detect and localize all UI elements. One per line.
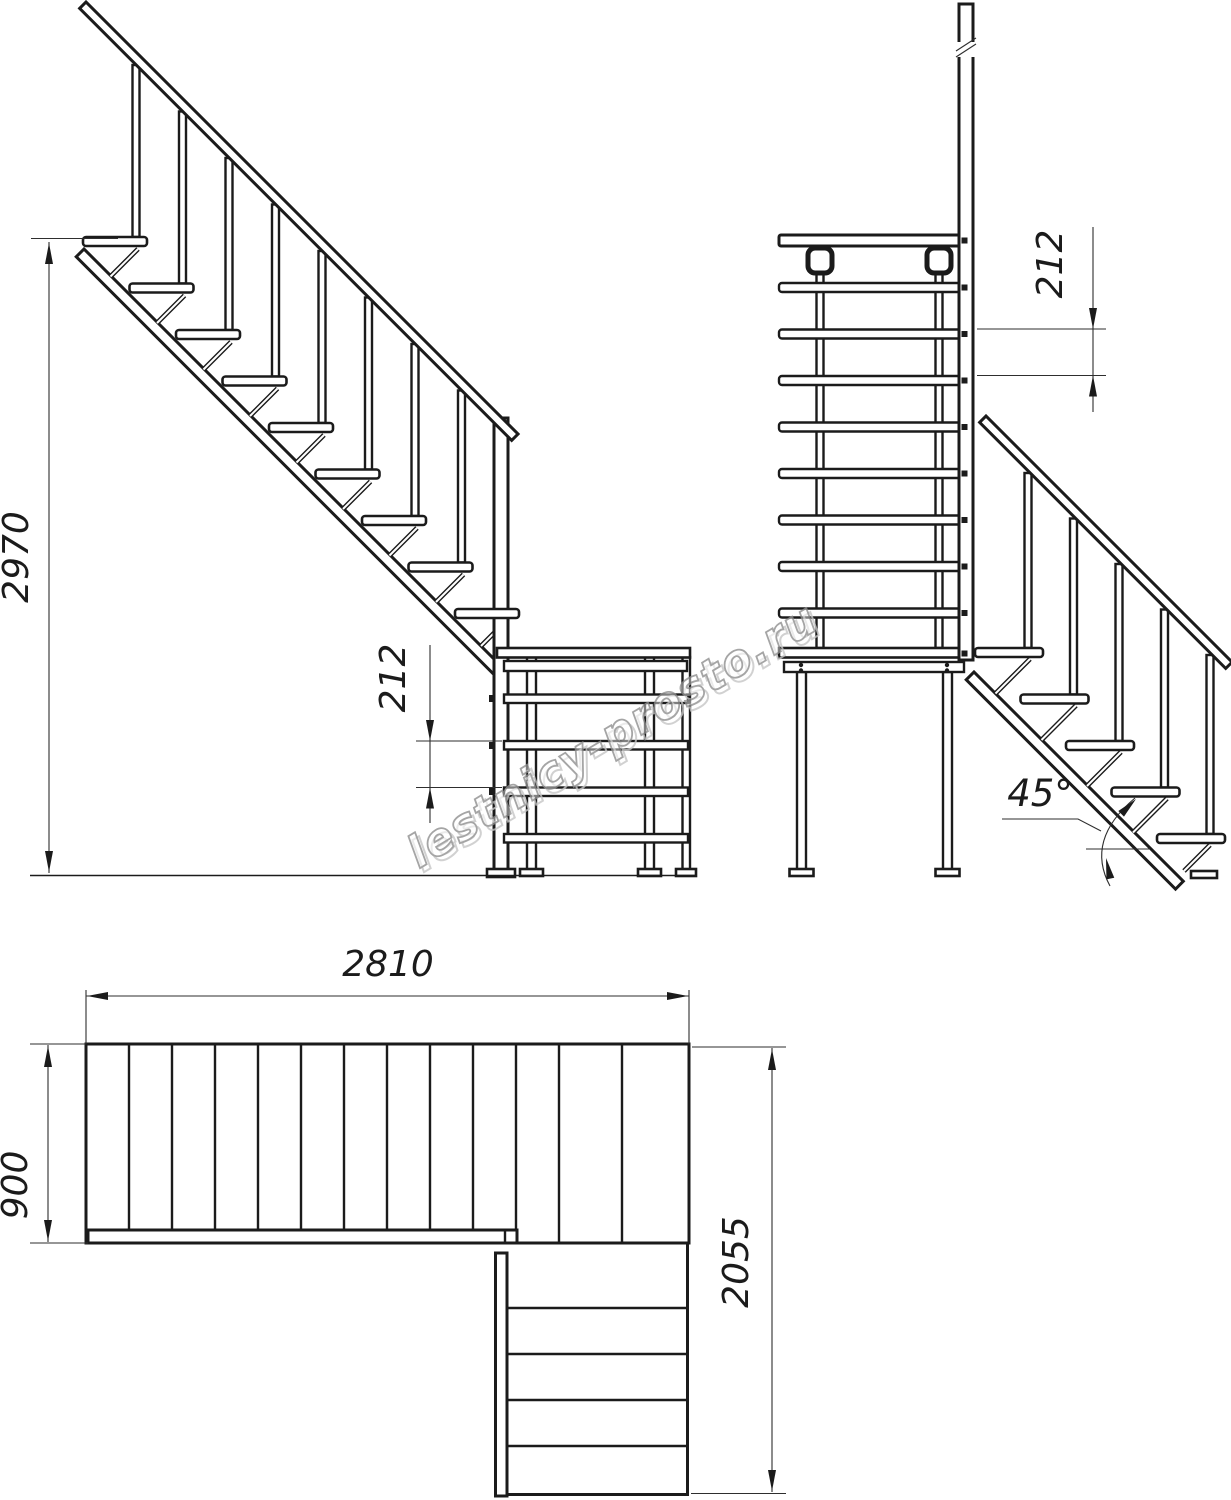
lower-handrail (980, 416, 1231, 668)
joint-mark (962, 610, 968, 616)
plan-view (86, 1044, 689, 1496)
tread (176, 330, 240, 339)
tread (316, 470, 380, 479)
arrowhead (1102, 857, 1114, 879)
brace (204, 342, 232, 370)
joint-mark (962, 424, 968, 430)
joint-mark (799, 663, 803, 667)
handrail-bracket (927, 248, 951, 273)
platform-apron (784, 662, 964, 672)
baluster (412, 344, 419, 516)
brace (111, 249, 139, 277)
brace (1087, 752, 1121, 786)
upper-flight-treads (83, 237, 519, 618)
tread (975, 648, 1043, 657)
arrowhead (45, 851, 53, 872)
tread (779, 423, 971, 432)
arrowhead (87, 992, 108, 1000)
platform-handrail (779, 235, 972, 246)
joint-mark (962, 285, 968, 291)
foot-plate (936, 869, 960, 876)
staircase-drawing: 2970 212 (0, 0, 1231, 1500)
baluster (1116, 564, 1123, 741)
joint-mark (962, 331, 968, 337)
baluster (272, 205, 279, 377)
dimension-lower-run-length-label: 2055 (716, 1216, 757, 1308)
upper-flight-braces (111, 249, 509, 646)
tread (1157, 834, 1225, 843)
joint-mark (962, 517, 968, 523)
dimension-front-step-rise-label: 212 (1030, 230, 1071, 299)
baluster (1025, 473, 1032, 648)
dimension-upper-run-length-label: 2810 (342, 944, 434, 985)
foot-plate (1191, 871, 1217, 878)
brace (1042, 706, 1077, 741)
brace (1133, 799, 1167, 833)
brace (436, 575, 464, 603)
lower-tread-edge (504, 834, 688, 843)
joint-mark (962, 471, 968, 477)
joint-mark (962, 651, 968, 657)
baluster (226, 158, 233, 330)
joint-mark (945, 668, 949, 672)
tread (779, 283, 971, 292)
tread (1021, 695, 1089, 704)
drawing-page: 2970 212 (0, 0, 1231, 1500)
joint-mark (489, 742, 495, 749)
brace (157, 296, 185, 324)
joint-mark (489, 695, 495, 702)
dimension-lower-run-length: 2055 (691, 1047, 786, 1494)
tread (779, 516, 971, 525)
brace (297, 435, 325, 463)
lower-flight-plan (496, 1243, 690, 1496)
platform-apron (504, 661, 687, 671)
baluster (319, 251, 326, 423)
arrowhead (426, 720, 434, 741)
dimension-front-step-rise: 212 (977, 227, 1106, 412)
tread (779, 469, 971, 478)
tread (779, 376, 971, 385)
dimension-stair-angle-label: 45° (1007, 772, 1073, 815)
upper-stringer (76, 249, 502, 675)
upper-handrail (80, 2, 518, 440)
arrowhead (1118, 796, 1139, 817)
tread (269, 423, 333, 432)
brace (390, 528, 418, 556)
joint-mark (945, 663, 949, 667)
tread (1112, 788, 1180, 797)
arrowhead (45, 243, 53, 264)
platform-leg (797, 672, 806, 870)
brace (996, 659, 1031, 694)
joint-mark (799, 668, 803, 672)
arrowhead (44, 1046, 52, 1067)
joint-mark (962, 238, 968, 244)
tread (223, 377, 287, 386)
joint-mark (962, 564, 968, 570)
brace (250, 389, 278, 417)
foot-plate (790, 869, 814, 876)
tread (779, 330, 971, 339)
baluster (458, 391, 465, 563)
baluster (133, 65, 140, 237)
platform-leg (943, 672, 952, 870)
handrail-bracket (808, 248, 832, 273)
arrowhead (768, 1049, 776, 1070)
landing-platform-front (779, 648, 971, 876)
arrowhead (667, 992, 688, 1000)
lower-flight-front (966, 416, 1231, 889)
baluster (179, 112, 186, 284)
baluster (1207, 655, 1214, 834)
plan-lower-stringer (496, 1253, 508, 1496)
platform-top (497, 648, 690, 658)
arrowhead (768, 1470, 776, 1491)
tread (1066, 741, 1134, 750)
dimension-total-height: 2970 (0, 239, 118, 874)
tread (362, 516, 426, 525)
tread (455, 609, 519, 618)
arrowhead (1089, 376, 1097, 397)
arrowhead (426, 788, 434, 809)
baluster (1161, 610, 1168, 788)
dimension-side-step-rise-label: 212 (373, 644, 414, 713)
brace (1184, 845, 1210, 871)
dimension-total-height-label: 2970 (0, 511, 37, 603)
joint-mark (962, 378, 968, 384)
arrowhead (1089, 308, 1097, 329)
leader-line (1002, 819, 1101, 831)
dimension-upper-run-length: 2810 (86, 944, 689, 1044)
baluster (1070, 519, 1077, 695)
tread (130, 284, 194, 293)
dimension-flight-width-label: 900 (0, 1151, 36, 1220)
brace (343, 482, 371, 510)
tread (779, 562, 971, 571)
tread (409, 563, 473, 572)
baluster (365, 298, 372, 470)
front-elevation-view (779, 4, 1231, 889)
plan-stringer-band (88, 1230, 517, 1243)
upper-flight-balusters (133, 65, 466, 563)
arrowhead (44, 1220, 52, 1241)
dimension-flight-width: 900 (0, 1044, 88, 1243)
